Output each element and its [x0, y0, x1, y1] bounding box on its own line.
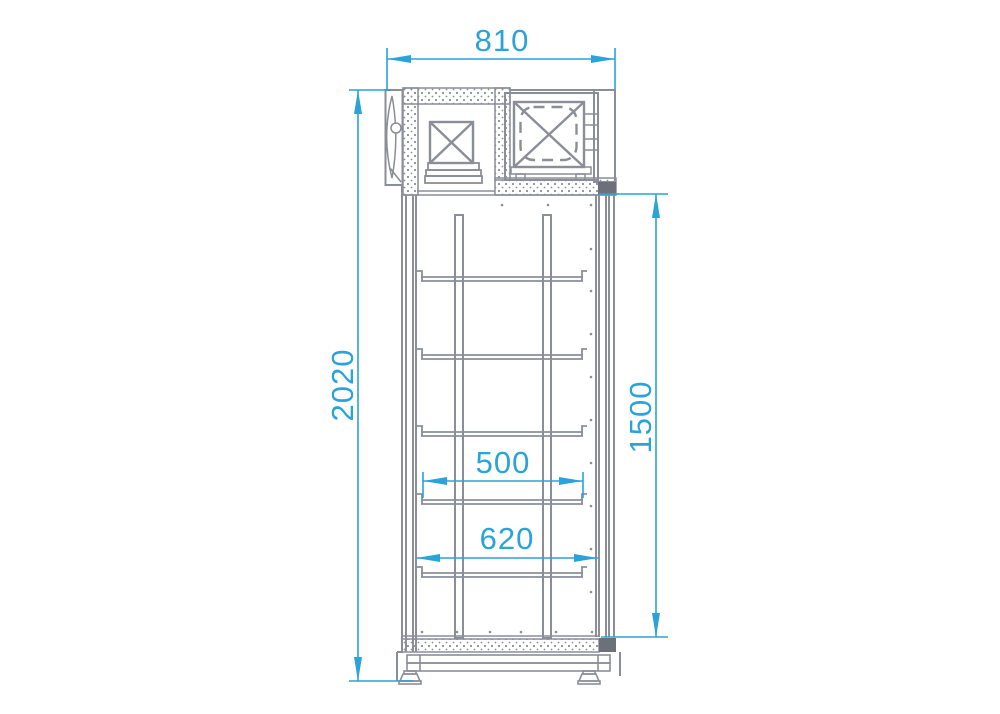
condenser-unit: [505, 93, 598, 180]
cabinet-body: [402, 185, 616, 652]
shelf-3: [417, 426, 587, 436]
base-frame: [397, 652, 620, 684]
dim-2020-label: 2020: [325, 315, 361, 455]
shelf-post-left: [455, 215, 463, 638]
top-compartment: [386, 88, 617, 195]
arrow-down-icon: [354, 657, 362, 681]
fan-box-base: [425, 163, 482, 183]
shelf-2: [417, 349, 587, 359]
arrow-right-icon: [574, 554, 598, 562]
left-wall: [402, 185, 416, 652]
cabinet-side-view-drawing: [0, 0, 1000, 714]
dim-500-label: 500: [443, 445, 563, 481]
top-hinge-block: [598, 182, 616, 195]
shelf-post-right: [543, 215, 551, 638]
shelf-1: [417, 271, 587, 281]
foot-left: [399, 671, 421, 684]
bottom-hinge-block: [599, 638, 616, 652]
hinge-circle: [391, 123, 401, 133]
fan-box-icon: [430, 122, 473, 163]
arrow-down-icon: [652, 613, 660, 637]
arrow-left-icon: [416, 554, 440, 562]
arrow-up-icon: [354, 90, 362, 114]
dim-620-label: 620: [447, 521, 567, 557]
arrow-up-icon: [652, 194, 660, 218]
foot-right: [578, 671, 600, 684]
arrow-right-icon: [591, 55, 615, 63]
shelf-5: [417, 567, 587, 577]
bottom-insulation: [402, 639, 599, 652]
dim-810-label: 810: [442, 23, 562, 59]
cabinet-outline: [386, 88, 621, 684]
drawing-canvas: 810 2020 1500 500 620: [0, 0, 1000, 714]
back-panel: [386, 90, 403, 185]
rivet-dots: [421, 204, 594, 634]
shelf-4: [417, 494, 587, 504]
arrow-left-icon: [387, 55, 411, 63]
door-panel: [596, 195, 614, 637]
lens-shape: [387, 96, 396, 178]
dim-1500-label: 1500: [623, 347, 659, 487]
